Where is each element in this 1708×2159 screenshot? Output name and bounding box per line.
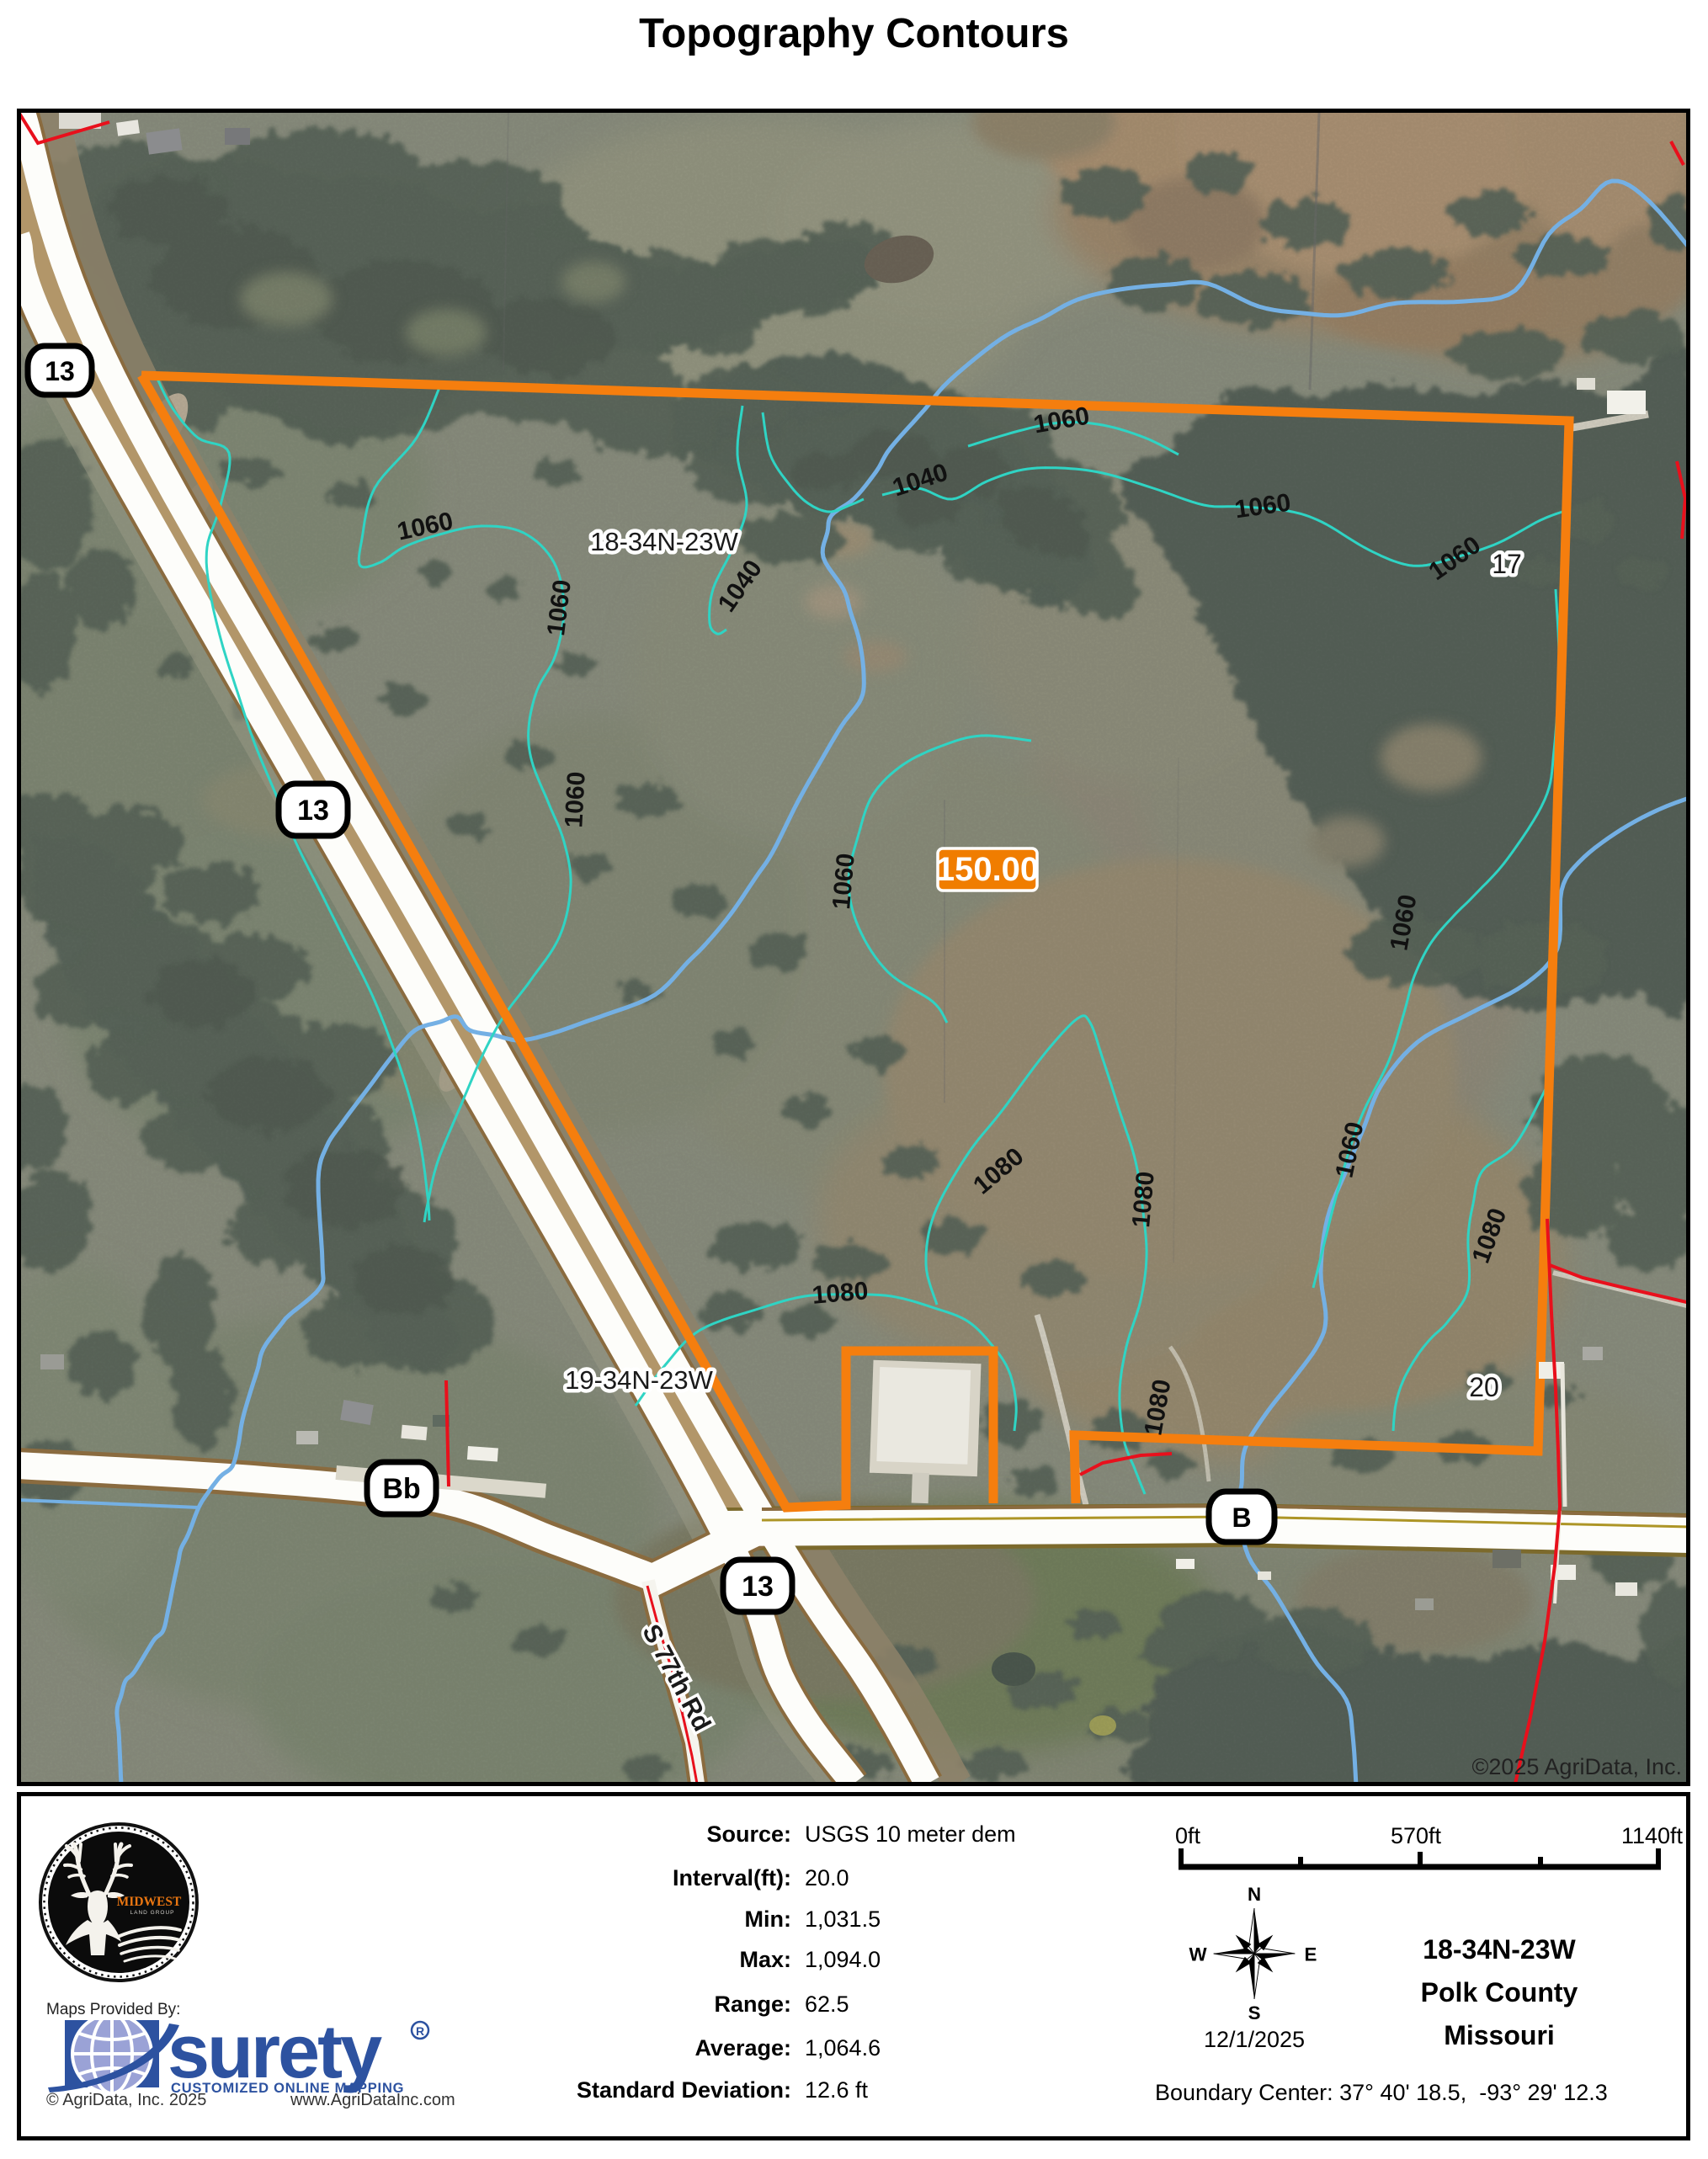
- svg-text:150.00: 150.00: [936, 851, 1039, 888]
- svg-text:W: W: [1189, 1944, 1208, 1965]
- svg-text:13: 13: [742, 1571, 774, 1603]
- svg-text:S: S: [1248, 2002, 1261, 2023]
- svg-text:LAND GROUP: LAND GROUP: [130, 1910, 175, 1916]
- svg-text:570ft: 570ft: [1391, 1823, 1442, 1848]
- svg-text:1080: 1080: [1127, 1170, 1160, 1228]
- svg-text:1060: 1060: [560, 771, 590, 828]
- svg-text:1060: 1060: [827, 852, 860, 910]
- svg-text:0ft: 0ft: [1175, 1823, 1201, 1848]
- svg-text:N: N: [1248, 1884, 1261, 1905]
- svg-text:20: 20: [1469, 1372, 1499, 1402]
- svg-text:13: 13: [45, 356, 75, 386]
- svg-text:MIDWEST: MIDWEST: [117, 1895, 182, 1909]
- svg-text:©2025 AgriData, Inc.: ©2025 AgriData, Inc.: [1471, 1754, 1682, 1779]
- svg-text:13: 13: [297, 795, 329, 827]
- svg-text:18-34N-23W: 18-34N-23W: [590, 527, 738, 556]
- svg-text:19-34N-23W: 19-34N-23W: [565, 1365, 713, 1395]
- svg-text:B: B: [1232, 1502, 1251, 1533]
- svg-text:1080: 1080: [811, 1277, 869, 1310]
- svg-text:Bb: Bb: [382, 1473, 420, 1505]
- svg-text:17: 17: [1492, 549, 1522, 579]
- svg-text:E: E: [1305, 1944, 1317, 1965]
- svg-text:1140ft: 1140ft: [1621, 1823, 1684, 1848]
